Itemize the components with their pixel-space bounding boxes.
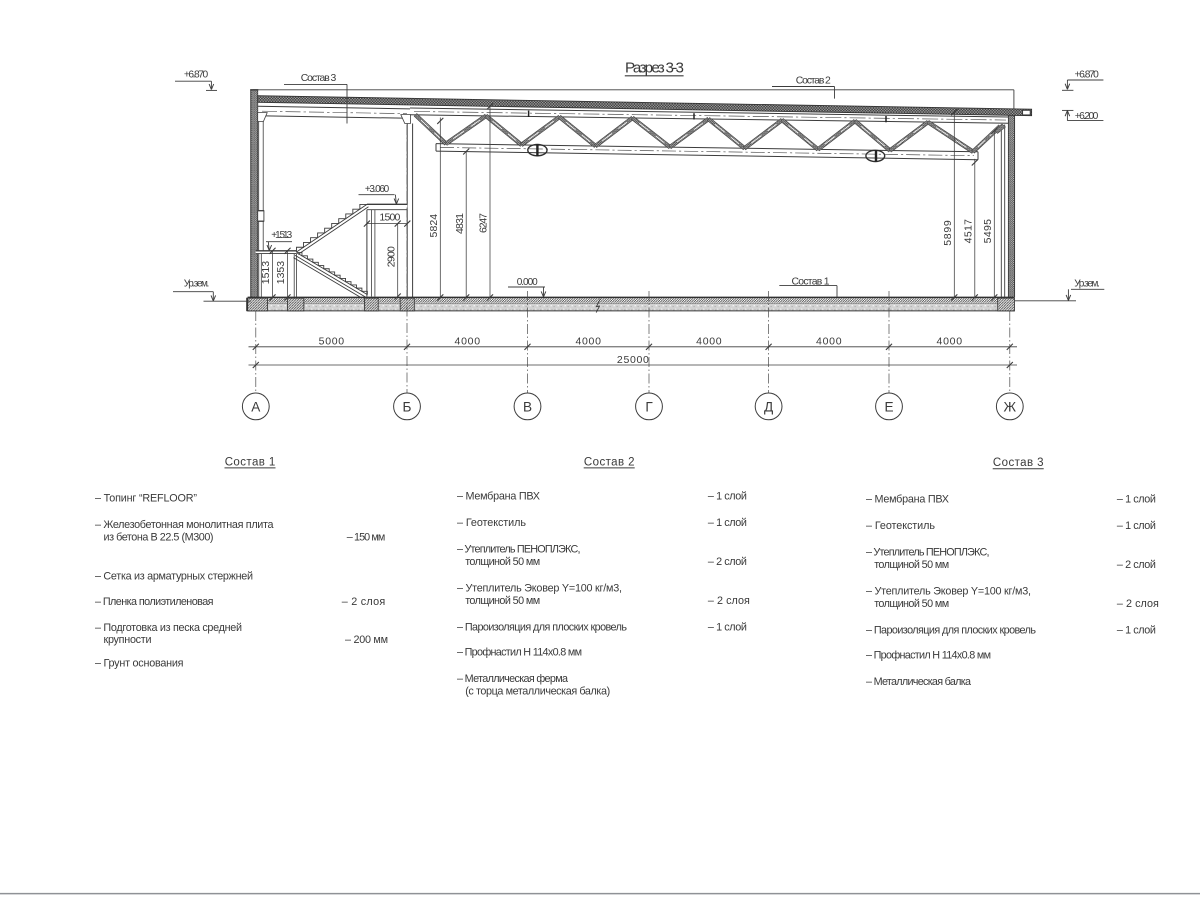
svg-text:из бетона В 22.5 (М300): из бетона В 22.5 (М300): [104, 531, 214, 543]
svg-text:Состав 3: Состав 3: [993, 457, 1044, 469]
svg-text:5000: 5000: [319, 336, 345, 348]
svg-text:5495: 5495: [982, 219, 994, 243]
svg-text:Состав 1: Состав 1: [225, 456, 276, 468]
svg-text:– Профнастил Н 114x0.8 мм: – Профнастил Н 114x0.8 мм: [866, 649, 991, 661]
svg-text:– Утеплитель ПЕНОПЛЭКС,: – Утеплитель ПЕНОПЛЭКС,: [457, 543, 581, 555]
svg-text:4517: 4517: [963, 219, 975, 243]
svg-text:1353: 1353: [275, 261, 287, 284]
svg-text:5899: 5899: [942, 220, 954, 246]
svg-text:– Мембрана ПВХ: – Мембрана ПВХ: [866, 493, 949, 505]
svg-text:– Грунт основания: – Грунт основания: [95, 658, 184, 670]
svg-text:крупности: крупности: [104, 634, 152, 646]
svg-text:6247: 6247: [478, 213, 490, 233]
svg-text:– Пленка полиэтиленовая: – Пленка полиэтиленовая: [95, 596, 214, 608]
svg-text:+6.870: +6.870: [1075, 69, 1100, 80]
svg-text:4000: 4000: [696, 336, 722, 348]
svg-text:+6.870: +6.870: [184, 69, 209, 80]
svg-text:1513: 1513: [260, 261, 272, 284]
svg-text:+1.513: +1.513: [271, 230, 292, 241]
svg-text:– 2 слоя: – 2 слоя: [342, 596, 386, 608]
svg-text:4000: 4000: [455, 336, 481, 348]
svg-text:Ур.зем.: Ур.зем.: [184, 278, 210, 289]
svg-text:– Геотекстиль: – Геотекстиль: [457, 517, 526, 529]
svg-text:Состав 2: Состав 2: [584, 456, 635, 468]
svg-text:Б: Б: [403, 399, 412, 414]
svg-text:– Подготовка из песка средней: – Подготовка из песка средней: [95, 622, 242, 634]
svg-text:В: В: [523, 399, 532, 414]
svg-text:толщиной 50 мм: толщиной 50 мм: [874, 559, 949, 571]
svg-text:Д: Д: [764, 399, 773, 414]
svg-text:4000: 4000: [937, 336, 963, 348]
svg-text:– Утеплитель ПЕНОПЛЭКС,: – Утеплитель ПЕНОПЛЭКС,: [866, 546, 990, 558]
svg-text:– Профнастил Н 114х0.8 мм: – Профнастил Н 114х0.8 мм: [457, 646, 582, 658]
svg-text:– 1 слой: – 1 слой: [708, 517, 747, 529]
svg-text:4000: 4000: [816, 336, 842, 348]
svg-text:Разрез 3-3: Разрез 3-3: [625, 59, 684, 76]
svg-text:– Мембрана ПВХ: – Мембрана ПВХ: [457, 490, 540, 502]
svg-text:Состав 3: Состав 3: [301, 73, 337, 84]
svg-text:– 2 слой: – 2 слой: [708, 556, 747, 568]
svg-text:Ж: Ж: [1004, 399, 1017, 414]
svg-text:– Утеплитель Эковер Y=100 кг/м: – Утеплитель Эковер Y=100 кг/м3,: [457, 582, 622, 594]
svg-text:А: А: [251, 399, 261, 414]
svg-text:– Железобетонная монолитная п: – Железобетонная монолитная плита: [95, 519, 274, 531]
svg-text:– Утеплитель Эковер Y=100 кг/м: – Утеплитель Эковер Y=100 кг/м3,: [866, 585, 1031, 597]
svg-text:– Геотекстиль: – Геотекстиль: [866, 520, 935, 532]
svg-text:толщиной 50 мм: толщиной 50 мм: [465, 556, 540, 568]
svg-text:+3.060: +3.060: [365, 184, 390, 195]
svg-text:– Металлическая балка: – Металлическая балка: [866, 676, 971, 688]
svg-text:– Пароизоляция для плоских кро: – Пароизоляция для плоских кровель: [866, 624, 1036, 636]
svg-text:– 150 мм: – 150 мм: [347, 531, 386, 543]
svg-text:– 2 слоя: – 2 слоя: [708, 595, 750, 607]
svg-text:1500: 1500: [379, 212, 400, 224]
svg-text:– 2 слоя: – 2 слоя: [1117, 598, 1159, 610]
svg-text:– 1 слой: – 1 слой: [1117, 624, 1156, 636]
svg-text:Ур.зем.: Ур.зем.: [1074, 279, 1100, 290]
svg-text:25000: 25000: [617, 354, 649, 366]
svg-text:толщиной 50 мм: толщиной 50 мм: [874, 598, 949, 610]
svg-text:– 1 слой: – 1 слой: [1117, 520, 1156, 532]
svg-text:Состав 2: Состав 2: [796, 75, 831, 86]
svg-text:Е: Е: [884, 399, 893, 414]
svg-text:– 200 мм: – 200 мм: [345, 634, 388, 646]
svg-text:4000: 4000: [575, 336, 601, 348]
svg-text:– Сетка из арматурных стержней: – Сетка из арматурных стержней: [95, 571, 253, 583]
svg-text:– Пароизоляция для плоских кро: – Пароизоляция для плоских кровель: [457, 621, 627, 633]
svg-text:5824: 5824: [428, 214, 440, 238]
svg-text:– 1 слой: – 1 слой: [1117, 493, 1156, 505]
svg-text:– 2 слой: – 2 слой: [1117, 559, 1156, 571]
svg-text:Г: Г: [645, 399, 653, 414]
svg-text:2900: 2900: [385, 246, 397, 267]
svg-text:толщиной 50 мм: толщиной 50 мм: [465, 595, 540, 607]
svg-text:– Металлическая ферма: – Металлическая ферма: [457, 673, 568, 685]
svg-text:– Топинг “REFLOOR”: – Топинг “REFLOOR”: [95, 492, 197, 504]
svg-text:4831: 4831: [454, 213, 466, 234]
svg-text:– 1 слой: – 1 слой: [708, 621, 747, 633]
svg-text:(с торца металлическая балка): (с торца металлическая балка): [465, 685, 610, 697]
svg-text:– 1 слой: – 1 слой: [708, 490, 747, 502]
